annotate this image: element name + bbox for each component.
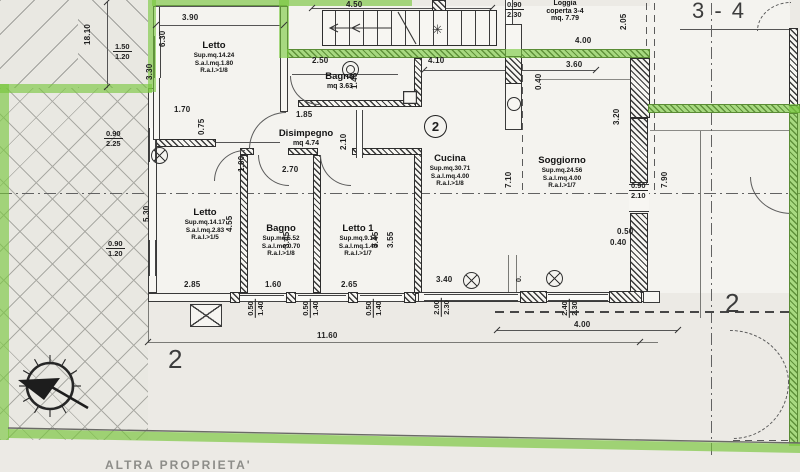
pier-2: [286, 292, 296, 303]
room-rai: R.a.I.>1/5: [165, 234, 245, 242]
dim-value: 1.40: [373, 299, 383, 318]
dim-value: 2.30: [441, 298, 451, 317]
room-soggiorno: Soggiorno Sup.mq.24.56 S.a.l.mq.4.00 R.a…: [520, 155, 604, 190]
dim-value: 0.50: [246, 299, 255, 318]
dim-5-30: 5.30: [142, 206, 151, 222]
wall-soggiorno-ne: [630, 58, 650, 118]
pier-3: [348, 292, 358, 303]
dim-fraction-soggiorno-window: 2.402.30: [560, 299, 579, 318]
dim-1-85: 1.85: [296, 110, 312, 119]
dim-value: 1.50: [113, 42, 132, 51]
pier-6: [609, 291, 642, 303]
room-cucina: Cucina Sup.mq.30.71 S.a.l.mq.4.00 R.a.I.…: [410, 153, 490, 188]
plot-line-bottom-left-area: [148, 342, 658, 343]
dim-fraction-loggia-door: 0.902.30: [505, 0, 524, 19]
dim-value: 2.30: [569, 299, 579, 318]
dim-2-85: 2.85: [184, 280, 200, 289]
french-door-arc-lower: [733, 382, 789, 439]
room-bagno-sw: Bagno Sup.mq.5.52 S.a.l.mq.0.70 R.a.I.>1…: [246, 223, 316, 258]
room-rai: R.a.I.>1/8: [410, 180, 490, 188]
room-name: Soggiorno: [520, 155, 604, 166]
pier-5: [520, 291, 547, 303]
pillar-cucina-hatch: [505, 56, 522, 84]
dim-0-50: 0.50: [617, 227, 633, 236]
room-name: Disimpegno: [268, 128, 344, 139]
dim-fraction-cucina-window: 2.002.30: [432, 298, 451, 317]
disimpegno-cucina-stub: [356, 110, 363, 158]
dim-value: 0.90: [106, 239, 125, 248]
room-bagno-top: Bagno mq 3.63: [310, 71, 370, 91]
section-line-horizontal: [0, 193, 800, 194]
room-sal: S.a.l.mq.1.80: [172, 60, 256, 68]
dim-3-45-b: 3.45: [371, 232, 380, 248]
wall-letto-nw-stub: [148, 139, 216, 147]
dim-1-60: 1.60: [265, 280, 281, 289]
dashed-line-pair-2: [654, 0, 655, 190]
dim-value: 0.50: [364, 299, 373, 318]
pier-7: [643, 291, 660, 303]
dim-fraction-south-window-2: 0.501.40: [301, 299, 320, 318]
dim-line-7-90: [700, 130, 701, 318]
dim-fraction-window-3: 0.901.20: [106, 239, 125, 258]
paving-hatch: [0, 88, 148, 440]
dim-value: 2.25: [104, 138, 123, 148]
dim-1-70: 1.70: [174, 105, 190, 114]
room-name: Bagno: [310, 71, 370, 82]
wall-soggiorno-right-lower: [630, 213, 648, 292]
room-disimpegno: Disimpegno mq 4.74: [268, 128, 344, 148]
dim-fraction-south-window-1: 0.501.40: [246, 299, 265, 318]
dim-line-4-00-bottom: [497, 330, 678, 331]
room-rai: R.a.I.>1/7: [316, 250, 400, 258]
floor-plan-scan: { "labels": { "unit_top_right": "3 - 4",…: [0, 0, 800, 466]
dim-value: 2.00: [432, 298, 441, 317]
dim-18-10: 18.10: [83, 24, 92, 45]
dim-3-90: 3.90: [182, 13, 198, 22]
room-letto-nw: Letto Sup.mq.14.24 S.a.l.mq.1.80 R.a.I.>…: [172, 40, 256, 75]
dim-3-45-a: 3.45: [282, 232, 291, 248]
room-sal: S.a.l.mq.4.00: [410, 173, 490, 181]
dim-4-00-top: 4.00: [575, 36, 591, 45]
dim-2-10: 2.10: [339, 134, 348, 150]
section-line-vertical-right: [711, 0, 712, 455]
green-loggia-band: [648, 104, 800, 113]
dim-7-10: 7.10: [504, 172, 513, 188]
dim-value: 2.30: [505, 9, 524, 19]
dim-2-50: 2.50: [312, 56, 328, 65]
dim-0-40-h: 0.40: [610, 238, 626, 247]
dim-value: 1.40: [310, 299, 320, 318]
french-door-arc-upper: [730, 330, 789, 383]
pier-1: [230, 292, 240, 303]
room-rai: R.a.I.>1/7: [520, 182, 604, 190]
loggia-line3: mq. 7.79: [528, 15, 602, 23]
dim-4-50: 4.50: [346, 0, 362, 9]
dim-line-3-90: [156, 25, 284, 26]
room-loggia: Loggia coperta 3-4 mq. 7.79: [528, 0, 602, 23]
dim-fraction-south-window-3: 0.501.40: [364, 299, 383, 318]
room-name: Letto: [172, 40, 256, 51]
loggia-line1: Loggia: [528, 0, 602, 8]
dim-11-60: 11.60: [317, 331, 338, 340]
dim-0-partial: 0.: [515, 276, 524, 282]
french-door-dashed-sill: [733, 440, 789, 441]
kitchen-counter-line-1: [508, 255, 509, 292]
loggia-line2: coperta 3-4: [528, 8, 602, 16]
dim-line-18-10: [107, 2, 108, 88]
dim-line-4-50: [312, 8, 492, 9]
electrical-symbol-soggiorno: [546, 270, 563, 287]
dim-value: 0.90: [104, 129, 123, 138]
dim-fraction-window-2: 0.902.25: [104, 129, 123, 148]
dim-1-00: 1.00: [237, 156, 246, 172]
dim-value: 1.20: [106, 248, 125, 258]
room-sal: S.a.l.mq.4.00: [520, 175, 604, 183]
dim-value: 0.50: [301, 299, 310, 318]
dim-value: 0.90: [629, 181, 648, 190]
dim-value: 1.40: [255, 299, 265, 318]
dim-3-55: 3.55: [386, 232, 395, 248]
unit-label-top-right: 3 - 4: [692, 0, 746, 24]
room-area: mq 3.63: [310, 83, 370, 91]
pier-4: [404, 292, 416, 303]
wall-soggiorno-right-upper: [630, 118, 648, 183]
dim-6-30: 6.30: [158, 31, 167, 47]
kitchen-counter-line-2: [516, 255, 517, 292]
room-area: Sup.mq.5.52: [246, 235, 316, 243]
shaft-crossed-box: [190, 304, 222, 327]
wall-right-upper: [789, 28, 798, 106]
dim-value: 2.10: [629, 190, 648, 200]
soggiorno-top-inner-line: [540, 79, 630, 80]
green-right-boundary: [789, 106, 800, 446]
kitchen-square-symbol: [403, 91, 417, 104]
dim-fraction-soggiorno-door: 0.902.10: [629, 181, 648, 200]
dim-3-20: 3.20: [612, 109, 621, 125]
dim-value: 2.40: [560, 299, 569, 318]
electrical-symbol-left: [151, 147, 168, 164]
room-area: Sup.mq.24.56: [520, 167, 604, 175]
room-area: mq 4.74: [268, 140, 344, 148]
room-rai: R.a.I.>1/8: [172, 67, 256, 75]
room-area: Sup.mq.14.24: [172, 52, 256, 60]
staircase: [322, 10, 497, 46]
room-name: Cucina: [410, 153, 490, 164]
wall-corridor-seg2: [288, 148, 318, 155]
dim-value: 1.20: [113, 51, 132, 61]
green-top-wall-band: [287, 49, 650, 58]
terrace-dashed-edge: [495, 311, 795, 313]
roof-hatch-left: [0, 0, 78, 88]
flue-circle: [507, 97, 521, 111]
dim-7-90: 7.90: [660, 172, 669, 188]
unit-label-bottom-left: 2: [168, 346, 182, 372]
apartment-number-circled: 2: [424, 115, 447, 138]
dim-1-45: 1.45: [350, 73, 359, 89]
dim-3-30: 3.30: [145, 64, 154, 80]
loggia-inner-line: [650, 130, 798, 131]
dim-value: 0.90: [505, 0, 524, 9]
room-rai: R.a.I.>1/8: [246, 250, 316, 258]
dim-fraction-window-1: 1.501.20: [113, 42, 132, 61]
room-sal: S.a.l.mq.0.70: [246, 243, 316, 251]
adjacent-property-text: ALTRA PROPRIETA': [105, 458, 252, 472]
green-step-horizontal: [0, 84, 152, 93]
green-left-boundary: [0, 84, 9, 440]
dim-0-40-v: 0.40: [534, 74, 543, 90]
star-symbol: ✳: [432, 22, 443, 38]
dim-3-60: 3.60: [566, 60, 582, 69]
dim-2-70: 2.70: [282, 165, 298, 174]
dim-2-65: 2.65: [341, 280, 357, 289]
electrical-symbol-cucina: [463, 272, 480, 289]
dim-2-05: 2.05: [619, 14, 628, 30]
dim-4-55: 4.55: [225, 216, 234, 232]
room-name: Bagno: [246, 223, 316, 234]
unit-label-bottom-right: 2: [725, 290, 739, 316]
dim-3-40: 3.40: [436, 275, 452, 284]
window-left-lower: [149, 240, 156, 276]
dim-0-75: 0.75: [197, 119, 206, 135]
dim-4-00-bottom: 4.00: [574, 320, 590, 329]
room-area: Sup.mq.30.71: [410, 165, 490, 173]
dim-4-10: 4.10: [428, 56, 444, 65]
